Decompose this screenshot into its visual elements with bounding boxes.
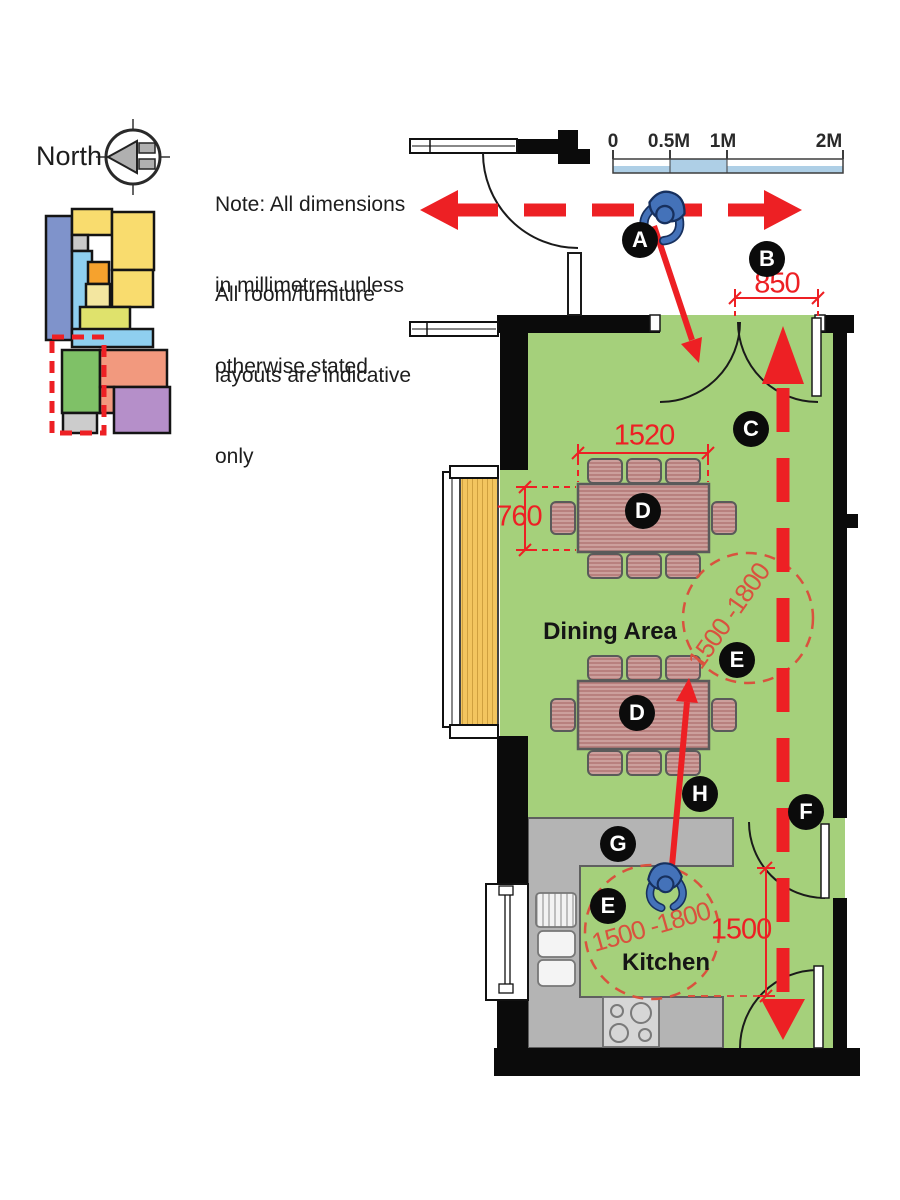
dim-table-760: 760 xyxy=(496,501,541,534)
marker-a: A xyxy=(622,222,658,258)
marker-e1: E xyxy=(719,642,755,678)
note-line: All room/furniture xyxy=(215,281,411,308)
dim-table-1520: 1520 xyxy=(614,420,675,453)
building-key-plan xyxy=(46,209,170,433)
marker-f: F xyxy=(788,794,824,830)
kitchen-sink xyxy=(536,893,576,986)
arrow-right xyxy=(764,190,802,230)
marker-d1: D xyxy=(625,493,661,529)
marker-e2: E xyxy=(590,888,626,924)
scale-label-05m: 0.5M xyxy=(648,131,690,153)
note-line: Note: All dimensions xyxy=(215,191,405,218)
marker-g: G xyxy=(600,826,636,862)
scale-label-1m: 1M xyxy=(710,131,736,153)
note-line: only xyxy=(215,443,411,470)
north-label: North xyxy=(36,141,102,172)
scale-label-2m: 2M xyxy=(816,131,842,153)
marker-c: C xyxy=(733,411,769,447)
marker-h: H xyxy=(682,776,718,812)
note-line: layouts are indicative xyxy=(215,362,411,389)
kitchen-hob xyxy=(603,997,659,1047)
floor-plan-page: North Note: All dimensions in millimetre… xyxy=(0,0,900,1200)
scale-bar xyxy=(613,150,843,173)
room-label-kitchen: Kitchen xyxy=(622,949,710,977)
marker-b: B xyxy=(749,241,785,277)
note-paragraph-2: All room/furniture layouts are indicativ… xyxy=(215,227,411,497)
plan-graphics xyxy=(0,0,900,1200)
scale-label-0: 0 xyxy=(608,131,619,153)
radiator xyxy=(460,478,498,725)
arrow-left xyxy=(420,190,458,230)
dim-kitchen-1500: 1500 xyxy=(711,914,772,947)
room-label-dining: Dining Area xyxy=(543,618,677,646)
marker-d2: D xyxy=(619,695,655,731)
north-compass-icon xyxy=(96,119,170,195)
